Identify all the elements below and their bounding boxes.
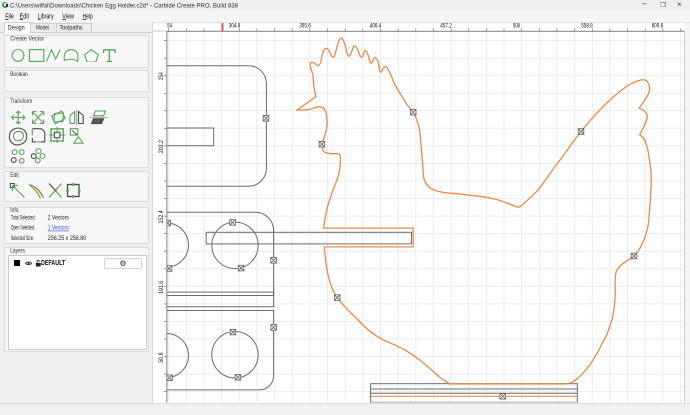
svg-text:609.6: 609.6 [652, 23, 664, 30]
svg-text:101.6: 101.6 [158, 280, 165, 293]
svg-text:406.4: 406.4 [370, 23, 382, 30]
svg-text:203.2: 203.2 [158, 140, 165, 153]
svg-text:558.8: 558.8 [581, 23, 593, 30]
svg-text:304.8: 304.8 [229, 23, 241, 30]
svg-text:254: 254 [158, 72, 165, 80]
svg-text:152.4: 152.4 [158, 210, 165, 223]
svg-text:54: 54 [167, 23, 172, 30]
svg-text:50.8: 50.8 [158, 352, 165, 363]
svg-text:508: 508 [513, 23, 520, 30]
svg-text:457.2: 457.2 [440, 23, 452, 30]
svg-text:355.6: 355.6 [299, 23, 311, 30]
